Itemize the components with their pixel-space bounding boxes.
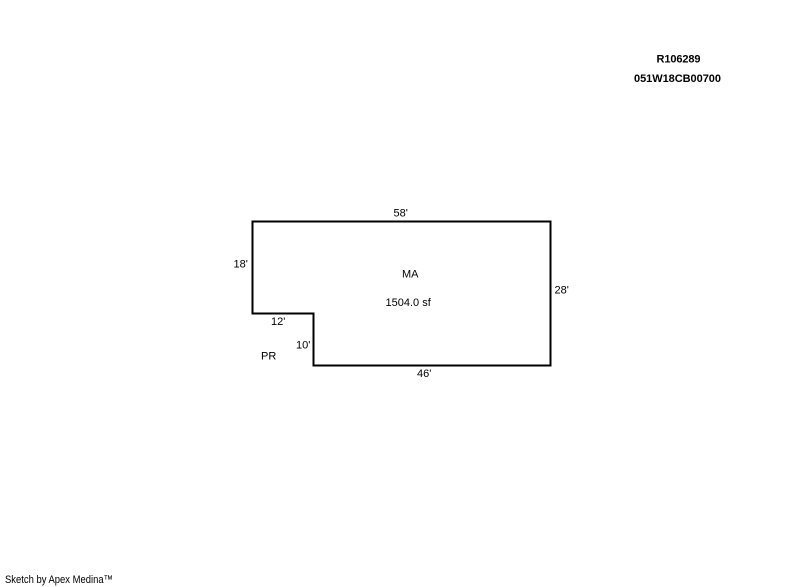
svg-text:28': 28' bbox=[555, 285, 569, 297]
svg-text:18': 18' bbox=[234, 259, 248, 271]
svg-text:10': 10' bbox=[296, 340, 310, 352]
svg-text:58': 58' bbox=[394, 208, 408, 220]
svg-text:46': 46' bbox=[417, 368, 431, 380]
svg-text:Sketch by Apex Medina™: Sketch by Apex Medina™ bbox=[5, 574, 113, 586]
svg-text:1504.0 sf: 1504.0 sf bbox=[386, 297, 432, 309]
svg-text:R106289: R106289 bbox=[657, 54, 701, 66]
svg-text:MA: MA bbox=[402, 269, 419, 281]
svg-text:12': 12' bbox=[271, 316, 285, 328]
svg-text:051W18CB00700: 051W18CB00700 bbox=[634, 73, 721, 85]
svg-text:PR: PR bbox=[261, 351, 276, 363]
